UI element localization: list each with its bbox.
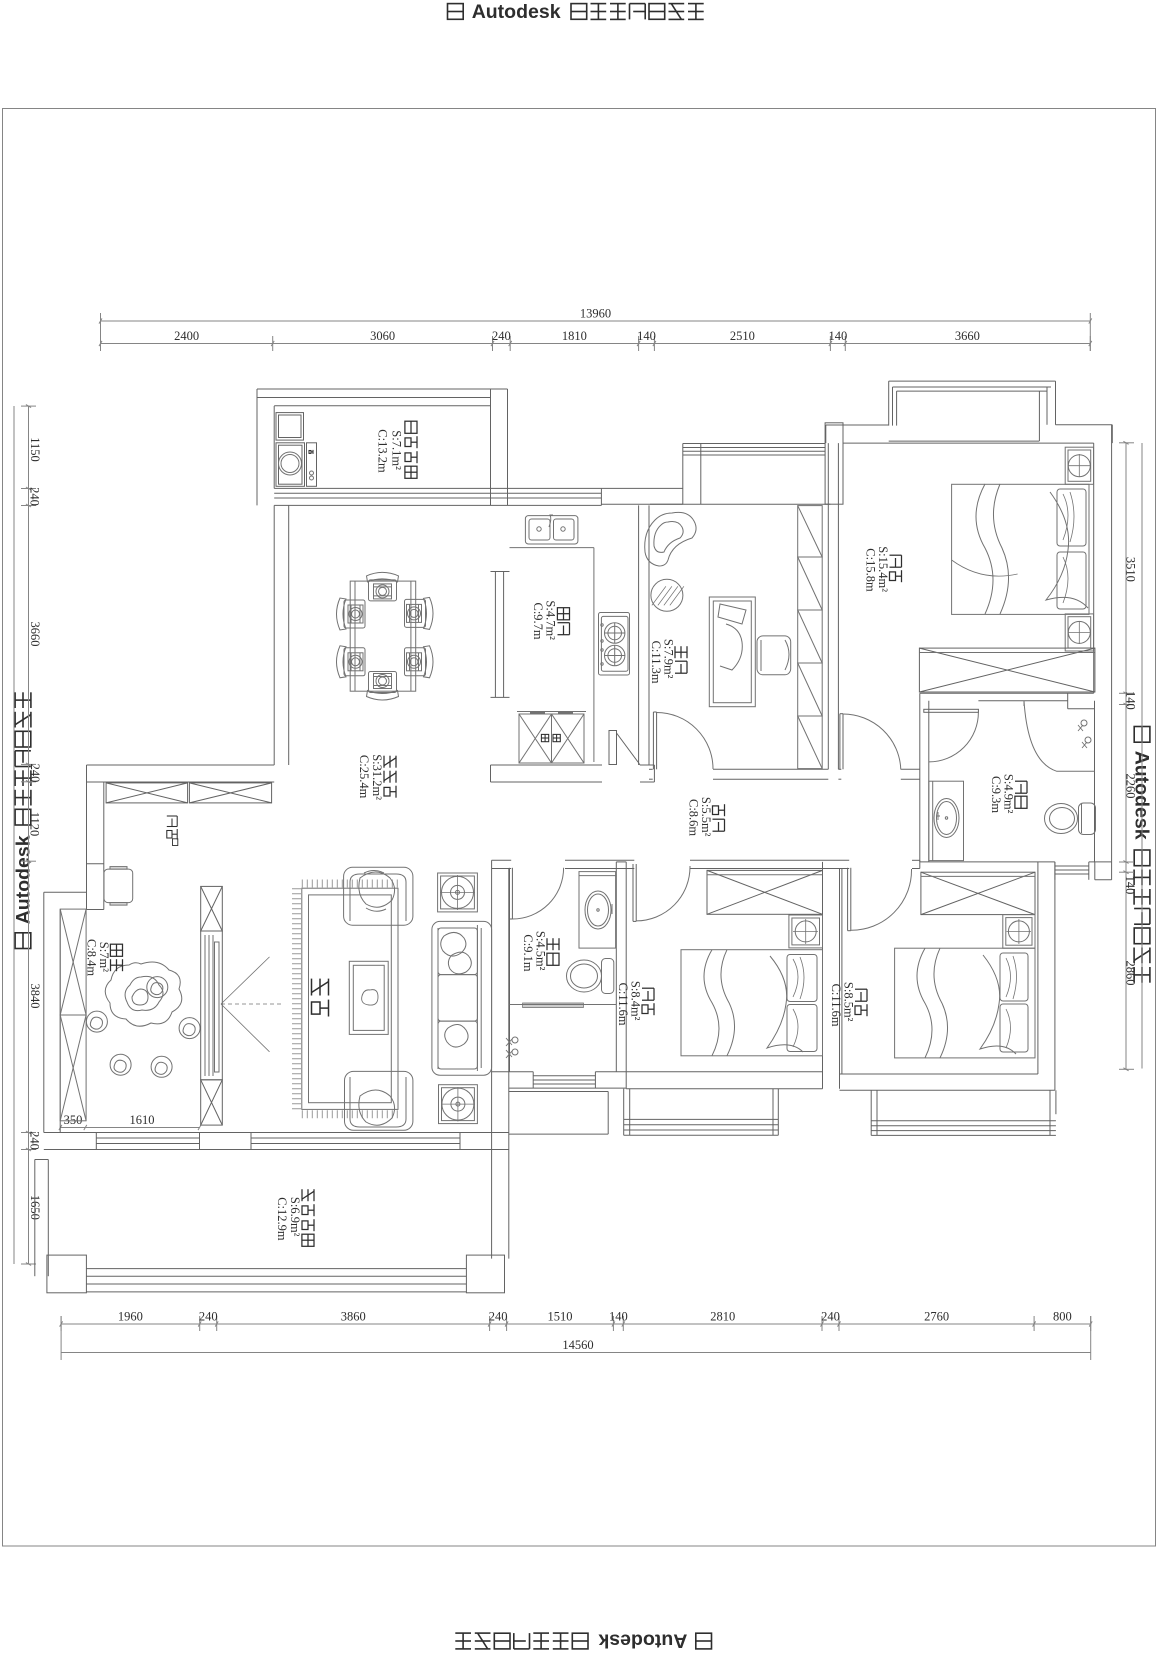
svg-text:140: 140 xyxy=(829,329,848,343)
svg-text:Autodesk: Autodesk xyxy=(472,1,561,23)
svg-text:Autodesk: Autodesk xyxy=(13,835,35,924)
svg-text:240: 240 xyxy=(28,764,42,783)
svg-text:140: 140 xyxy=(637,329,656,343)
svg-text:1610: 1610 xyxy=(130,1113,155,1127)
svg-text:3660: 3660 xyxy=(28,622,42,647)
svg-text:3860: 3860 xyxy=(341,1310,366,1324)
svg-text:140: 140 xyxy=(1123,691,1137,710)
svg-text:C:8.4m: C:8.4m xyxy=(84,939,98,976)
svg-text:C:8.6m: C:8.6m xyxy=(686,799,700,836)
svg-text:2810: 2810 xyxy=(710,1310,735,1324)
svg-text:240: 240 xyxy=(489,1310,508,1324)
svg-text:C:12.9m: C:12.9m xyxy=(275,1197,289,1241)
svg-text:2260: 2260 xyxy=(1123,774,1137,799)
svg-text:C:11.6m: C:11.6m xyxy=(829,984,843,1027)
svg-text:C:9.3m: C:9.3m xyxy=(989,776,1003,813)
svg-text:C:9.7m: C:9.7m xyxy=(531,603,545,640)
svg-text:C:11.6m: C:11.6m xyxy=(616,983,630,1026)
svg-text:1810: 1810 xyxy=(562,329,587,343)
svg-text:140: 140 xyxy=(1123,876,1137,895)
svg-text:2510: 2510 xyxy=(730,329,755,343)
svg-text:1120: 1120 xyxy=(28,812,42,837)
svg-text:240: 240 xyxy=(199,1310,218,1324)
svg-text:140: 140 xyxy=(609,1310,628,1324)
svg-text:240: 240 xyxy=(492,329,511,343)
svg-text:800: 800 xyxy=(1053,1310,1072,1324)
svg-text:2400: 2400 xyxy=(174,329,199,343)
svg-text:C:9.1m: C:9.1m xyxy=(521,934,535,971)
svg-text:C:13.2m: C:13.2m xyxy=(375,429,389,473)
svg-text:240: 240 xyxy=(28,487,42,506)
svg-text:350: 350 xyxy=(64,1113,83,1127)
svg-text:S:6.9m²: S:6.9m² xyxy=(288,1197,302,1237)
svg-text:240: 240 xyxy=(821,1310,840,1324)
svg-text:13960: 13960 xyxy=(580,307,611,321)
svg-text:3840: 3840 xyxy=(28,984,42,1009)
svg-text:1510: 1510 xyxy=(548,1310,573,1324)
svg-text:3660: 3660 xyxy=(955,329,980,343)
svg-text:S:7.1m²: S:7.1m² xyxy=(389,430,403,470)
svg-text:240: 240 xyxy=(28,1131,42,1150)
svg-text:1150: 1150 xyxy=(28,437,42,462)
svg-text:2760: 2760 xyxy=(924,1310,949,1324)
svg-text:3060: 3060 xyxy=(370,329,395,343)
svg-text:3510: 3510 xyxy=(1123,557,1137,582)
svg-text:Autodesk: Autodesk xyxy=(598,1629,687,1651)
svg-text:S:31.2m²: S:31.2m² xyxy=(370,754,384,800)
svg-text:C:15.8m: C:15.8m xyxy=(863,548,877,592)
svg-text:1960: 1960 xyxy=(118,1310,143,1324)
svg-text:C:25.4m: C:25.4m xyxy=(357,755,371,799)
svg-text:14560: 14560 xyxy=(562,1338,593,1352)
svg-text:2860: 2860 xyxy=(1123,961,1137,986)
svg-text:C:11.3m: C:11.3m xyxy=(649,641,663,684)
